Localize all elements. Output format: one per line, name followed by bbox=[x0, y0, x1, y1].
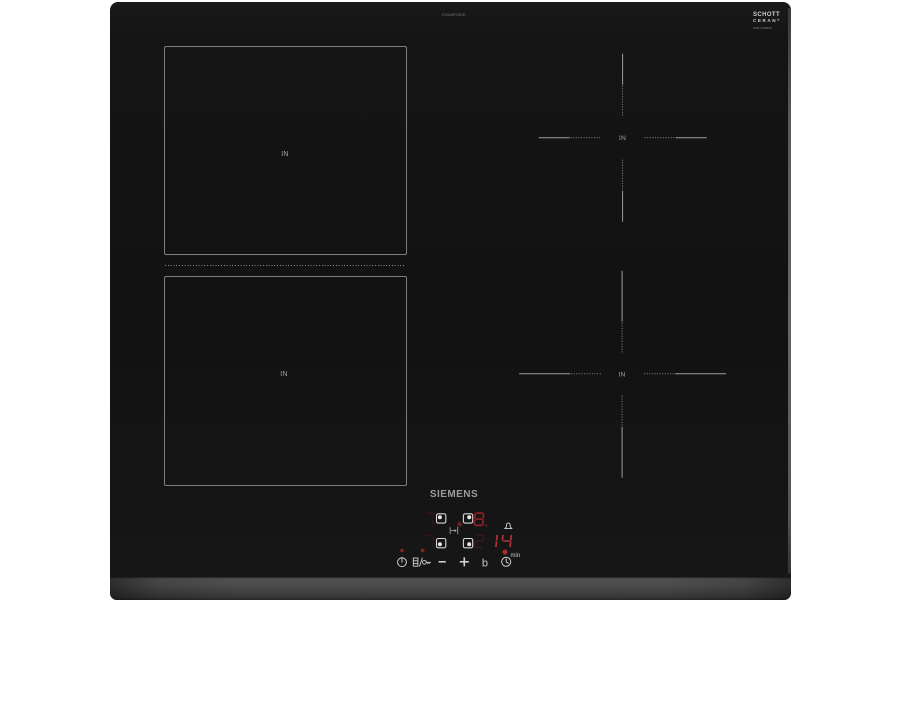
svg-text:b: b bbox=[482, 557, 488, 569]
svg-text:IN: IN bbox=[619, 135, 626, 142]
svg-text:min: min bbox=[511, 553, 521, 559]
svg-text:IN: IN bbox=[619, 371, 626, 378]
